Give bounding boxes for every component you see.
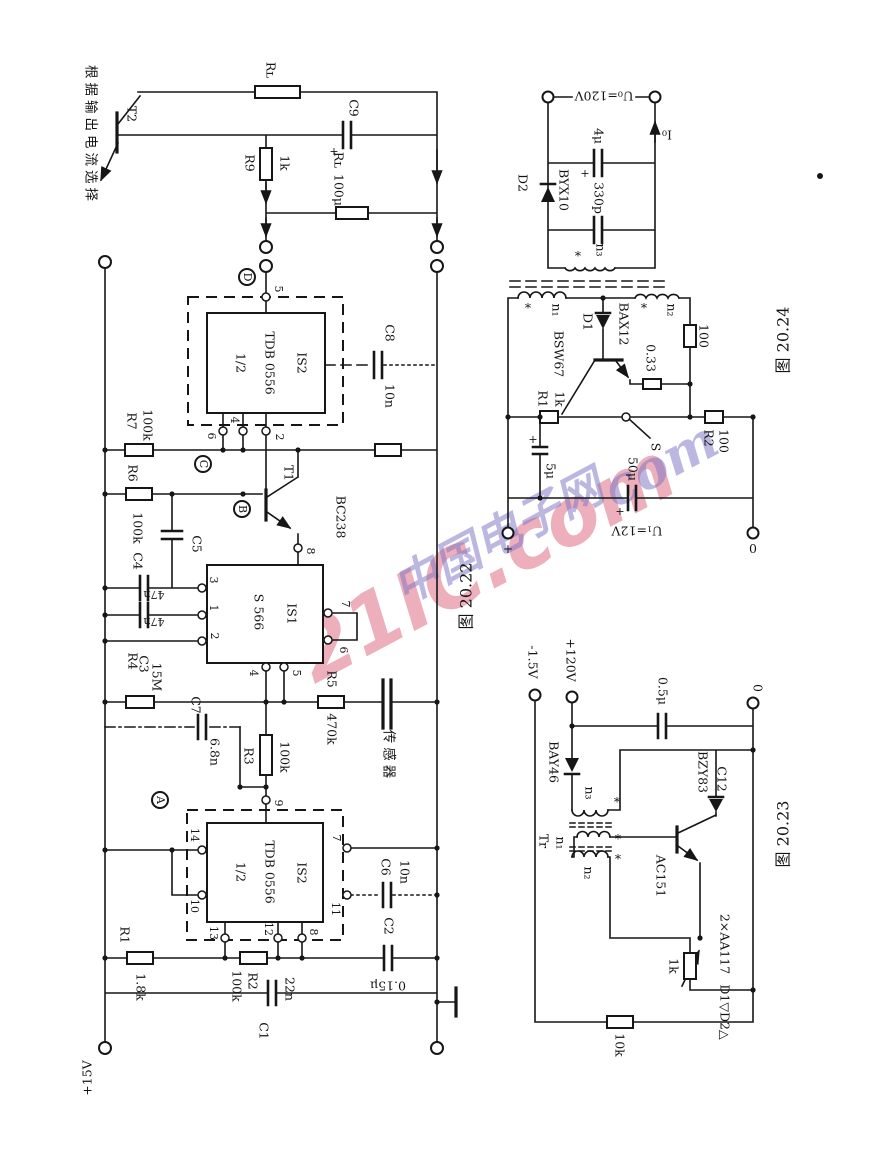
label-r2: R2 <box>246 972 261 989</box>
label-node-d: D <box>241 273 254 282</box>
label-node-c: C <box>197 460 210 468</box>
label-p13: 13 <box>207 926 220 940</box>
caption-20-23: 图 20.23 <box>774 801 793 868</box>
label-d2-type: BYX10 <box>557 169 572 211</box>
label-p11: 11 <box>329 902 342 916</box>
label-p8: 8 <box>304 548 317 555</box>
label-c2v: 0.15μ <box>370 979 406 994</box>
label-node-b: B <box>236 505 249 513</box>
label-r5v: 470k <box>325 713 340 745</box>
label-p10: 10 <box>188 899 201 913</box>
label-vpos: +120V <box>564 638 579 682</box>
star-n2-23: * <box>615 851 622 866</box>
label-c7v: 6.8n <box>208 738 223 766</box>
label-n1-23: n₁ <box>554 836 569 849</box>
caption-20-24: 图 20.24 <box>774 307 793 374</box>
resistor-r6 <box>126 488 152 500</box>
label-r5: R5 <box>325 670 340 687</box>
label-c6v: 10n <box>398 860 413 884</box>
label-c3v: 47n <box>143 615 164 628</box>
label-p9: 9 <box>272 800 285 807</box>
label-r1v: 1.8k <box>134 973 149 1001</box>
label-rl1: Rʟ <box>264 62 279 78</box>
label-n2-23: n₂ <box>582 866 597 879</box>
label-05u: 0.5μ <box>656 677 671 705</box>
plus-vin: + <box>503 541 513 556</box>
label-t1: T1 <box>282 465 297 481</box>
star-n1-24: * <box>525 300 532 315</box>
resistor-r9 <box>260 148 272 180</box>
label-n3-24: n₃ <box>594 243 609 256</box>
label-tr: Tr <box>537 834 552 848</box>
label-node-a: A <box>154 795 167 805</box>
label-dpair: D1▽D2△ <box>718 984 733 1040</box>
label-r2-24: R2 <box>702 429 717 446</box>
label-is2a-name: TDB 0556 <box>263 331 278 394</box>
label-r3: R3 <box>242 747 257 764</box>
star-n1-23: * <box>615 831 622 846</box>
label-r9v: 1k <box>278 155 293 171</box>
label-n2-24: n₂ <box>665 303 680 316</box>
label-is1-name: S 566 <box>252 594 267 630</box>
label-c4: C4 <box>131 552 146 570</box>
resistor-033 <box>643 379 661 389</box>
resistor-r2-24 <box>705 411 723 423</box>
label-q7: 7 <box>339 601 352 608</box>
label-c12: C12 <box>715 766 730 791</box>
label-vin: U₁=12V <box>611 524 663 539</box>
label-q4: 4 <box>247 670 260 677</box>
label-n1-24: n₁ <box>550 303 565 316</box>
label-r7v: 100k <box>141 409 156 441</box>
label-4u: 4μ <box>592 128 607 144</box>
resistor-r1-24 <box>540 411 558 423</box>
resistor-r7 <box>125 444 153 456</box>
label-t1-type: BC238 <box>334 496 349 539</box>
scanned-schematic-page: 21IC.com 中国电子网 com <box>0 0 896 1175</box>
label-c3: C3 <box>137 655 152 673</box>
label-r2v: 100k <box>230 970 245 1002</box>
label-r7: R7 <box>125 412 140 429</box>
label-p12: 12 <box>262 922 275 936</box>
label-is2b-half: 1/2 <box>234 862 249 882</box>
resistor-r5 <box>318 696 344 708</box>
scan-artifact-dot <box>817 173 823 179</box>
label-p6: 6 <box>205 433 218 440</box>
label-note: 根据输出电流选择 <box>83 65 99 205</box>
label-p2: 2 <box>273 434 286 441</box>
label-rl2: Rʟ <box>332 152 347 168</box>
resistor-r1 <box>127 952 153 964</box>
star-n3-24: * <box>575 248 582 263</box>
label-p7: 7 <box>330 835 343 842</box>
label-d1-24: D1 <box>581 313 596 331</box>
label-10k: 10k <box>613 1033 628 1057</box>
label-sensor: 传感器 <box>381 730 398 783</box>
label-q3: 3 <box>207 577 220 584</box>
resistor-r3 <box>260 735 272 775</box>
label-bzy83: BZY83 <box>696 751 711 793</box>
resistor-r4 <box>126 696 154 708</box>
label-pot-1k: 1k <box>667 958 682 974</box>
label-is2b-name: TDB 0556 <box>263 840 278 903</box>
label-q1: 1 <box>207 605 220 612</box>
resistor-rw100 <box>684 325 696 347</box>
label-q6: 6 <box>337 647 350 654</box>
potentiometer-1k <box>684 953 696 979</box>
switch-contact <box>622 413 630 421</box>
resistor-r2 <box>240 952 267 964</box>
label-r6: R6 <box>126 464 141 481</box>
label-iout: I₀ <box>662 128 672 143</box>
label-c8v: 10n <box>383 384 398 408</box>
label-dpair-type: 2×AA117 <box>718 914 733 974</box>
label-c1v: 22n <box>283 977 298 1001</box>
label-q5: 5 <box>290 670 303 677</box>
label-zero-24: 0 <box>749 541 757 556</box>
label-supply: +15V <box>80 1059 95 1095</box>
label-t2: T2 <box>125 106 140 122</box>
label-r2v-24: 100 <box>717 429 732 453</box>
label-p4: 4 <box>228 417 241 424</box>
label-bsw67: BSW67 <box>552 331 567 378</box>
caption-20-22: 图 20.22 <box>457 563 476 630</box>
label-ac151: AC151 <box>654 854 669 897</box>
label-bay46: BAY46 <box>547 741 562 783</box>
label-d2-24: D2 <box>516 174 531 192</box>
label-c9: C9 <box>347 99 362 117</box>
label-5u: 5μ <box>544 463 559 479</box>
label-330p: 330p <box>592 182 607 214</box>
label-is2b-id: IS2 <box>295 862 310 883</box>
label-is1-id: IS1 <box>285 603 300 624</box>
label-vneg: -1.5V <box>526 645 541 679</box>
label-q2: 2 <box>208 633 221 640</box>
star-n3-23: * <box>614 794 621 809</box>
label-vout: U₀=120V <box>574 89 634 104</box>
resistor-r8 <box>375 444 401 456</box>
label-d1-type: BAX12 <box>617 302 632 345</box>
label-c5: C5 <box>190 535 205 553</box>
label-c8: C8 <box>383 324 398 342</box>
resistor-rl2 <box>336 207 368 219</box>
label-p5: 5 <box>272 286 285 293</box>
label-50u: 50μ <box>626 457 641 481</box>
label-r1-24: R1 <box>536 390 551 407</box>
label-r6v: 100k <box>131 512 146 544</box>
label-rw: 100 <box>697 324 712 348</box>
label-c6: C6 <box>379 858 394 876</box>
label-r3v: 100k <box>278 741 293 773</box>
label-p14: 14 <box>188 828 201 842</box>
resistor-rl1 <box>255 86 300 98</box>
label-033: 0.33 <box>644 344 659 372</box>
plus-4u: + <box>580 167 589 180</box>
label-c9v: 100μ <box>332 174 347 206</box>
label-c4v: 47n <box>143 588 164 601</box>
resistor-10k <box>607 1016 633 1028</box>
label-is2a-id: IS2 <box>295 352 310 373</box>
label-r9: R9 <box>243 154 258 171</box>
star-n2-24: * <box>641 300 648 315</box>
label-zero-23: 0 <box>751 684 766 692</box>
label-r1v-24: 1k <box>553 391 568 407</box>
label-r4v: 15M <box>150 663 165 692</box>
label-c2: C2 <box>382 917 397 935</box>
label-c7: C7 <box>189 696 204 714</box>
plus-5u: + <box>528 433 537 446</box>
label-r1: R1 <box>118 926 133 943</box>
label-c1: C1 <box>257 1022 272 1040</box>
label-n3-23: n₃ <box>583 786 598 799</box>
label-is2a-half: 1/2 <box>234 353 249 373</box>
label-p8b: 8 <box>307 929 320 936</box>
plus-50u: + <box>615 505 624 518</box>
label-sw: S <box>649 443 664 452</box>
